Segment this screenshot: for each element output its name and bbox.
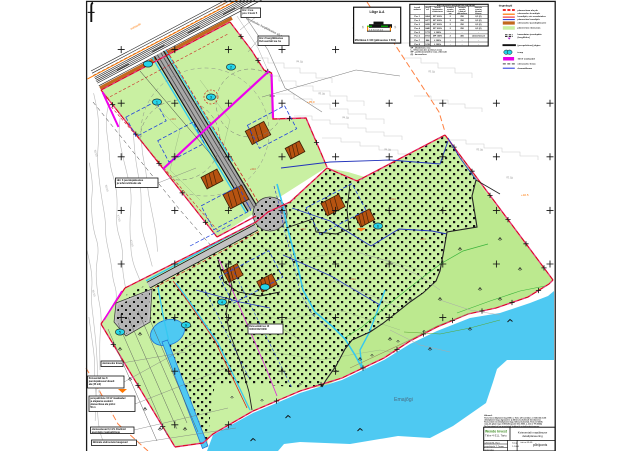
svg-text:tingmärgid: tingmärgid bbox=[499, 3, 513, 7]
svg-text:Pos 6: Pos 6 bbox=[414, 36, 420, 38]
svg-text:m2: m2 bbox=[426, 9, 429, 11]
svg-text:EP 100%: EP 100% bbox=[433, 20, 442, 22]
svg-text:Pos 8: Pos 8 bbox=[414, 44, 420, 46]
svg-text:Kvissentali tee 1a: Kvissentali tee 1a bbox=[259, 39, 281, 43]
svg-text:olemasolev kraav: olemasolev kraav bbox=[102, 362, 123, 365]
svg-text:EHITUSÕIGUS JA KRUNTIDE NÄITAJ: EHITUSÕIGUS JA KRUNTIDE NÄITAJAD bbox=[437, 4, 476, 7]
svg-text:(perspektiivne) jalgtee: (perspektiivne) jalgtee bbox=[518, 44, 542, 47]
svg-text:ja tehnovõrkude ala: ja tehnovõrkude ala bbox=[116, 181, 142, 185]
svg-text:sihtotstarve: sihtotstarve bbox=[432, 10, 443, 13]
svg-text:aadress: aadress bbox=[414, 9, 421, 11]
svg-text:+35.0: +35.0 bbox=[307, 100, 315, 104]
svg-text:1:1000: 1:1000 bbox=[512, 446, 519, 448]
svg-text:1: 1 bbox=[156, 100, 158, 104]
svg-text:Mõõtkava 1:100 (pikisuunas 1:5: Mõõtkava 1:100 (pikisuunas 1:500) bbox=[355, 39, 396, 42]
svg-text:+34.6: +34.6 bbox=[250, 169, 257, 171]
svg-text:kuup.: kuup. bbox=[512, 442, 518, 444]
svg-text:L 100%: L 100% bbox=[434, 44, 441, 46]
svg-text:6: 6 bbox=[377, 224, 379, 228]
svg-text:truup: truup bbox=[518, 51, 524, 54]
svg-text:Pos 5: Pos 5 bbox=[414, 32, 420, 34]
svg-text:+34.6: +34.6 bbox=[300, 229, 307, 231]
svg-text:asendada maakaablitega: asendada maakaablitega bbox=[92, 431, 121, 434]
svg-text:8,5 (2): 8,5 (2) bbox=[475, 16, 481, 18]
svg-text:töö nr 05-05: töö nr 05-05 bbox=[521, 441, 534, 444]
svg-text:Emajõgi: Emajõgi bbox=[394, 397, 413, 403]
svg-text:kõrgus: kõrgus bbox=[475, 12, 481, 15]
svg-text:27737: 27737 bbox=[425, 36, 432, 38]
svg-text:EP 100%: EP 100% bbox=[433, 16, 442, 18]
svg-text:krundipiir, mis muudetakse: krundipiir, mis muudetakse bbox=[518, 15, 547, 18]
svg-text:lähimate eluhoonete kaugused: lähimate eluhoonete kaugused bbox=[93, 441, 128, 444]
svg-text:Pos 7: Pos 7 bbox=[414, 40, 420, 42]
svg-text:10 kV maakaabel: 10 kV maakaabel bbox=[518, 58, 536, 60]
svg-text:+34.6: +34.6 bbox=[420, 239, 427, 241]
svg-text:olemasolev juurdepääsutee: olemasolev juurdepääsutee bbox=[518, 22, 547, 25]
svg-text:4: 4 bbox=[221, 300, 223, 304]
svg-text:väikeehitised: väikeehitised bbox=[472, 35, 486, 38]
svg-text:EP 100%: EP 100% bbox=[433, 28, 442, 30]
svg-text:olemasolev kraav: olemasolev kraav bbox=[518, 64, 537, 66]
svg-text:Lõige A-A: Lõige A-A bbox=[370, 10, 386, 14]
svg-text:10404:002:0030: 10404:002:0030 bbox=[249, 328, 267, 331]
svg-text:8,5 (2): 8,5 (2) bbox=[475, 20, 481, 22]
svg-text:olemasolev krundipiir: olemasolev krundipiir bbox=[518, 13, 541, 15]
svg-text:5: 5 bbox=[119, 330, 121, 334]
svg-text:+32.5: +32.5 bbox=[521, 193, 529, 197]
svg-text:8,5 (2): 8,5 (2) bbox=[475, 24, 481, 26]
svg-text:8,5 (2): 8,5 (2) bbox=[475, 28, 481, 30]
svg-text:+34.6: +34.6 bbox=[350, 279, 357, 281]
svg-text:ehitusalune: ehitusalune bbox=[457, 12, 468, 15]
svg-text:2: 2 bbox=[230, 65, 232, 69]
svg-text:L 100%: L 100% bbox=[434, 32, 441, 34]
svg-text:planeeritav elamumaa: planeeritav elamumaa bbox=[518, 26, 542, 29]
svg-text:3: 3 bbox=[210, 95, 212, 99]
svg-text:drenaažikraav: drenaažikraav bbox=[518, 67, 533, 70]
svg-text:pos 1 kuni 5: pos 1 kuni 5 bbox=[242, 11, 258, 15]
svg-text:(2) - korruselisus: (2) - korruselisus bbox=[411, 54, 428, 56]
svg-text:Pos 3: Pos 3 bbox=[414, 24, 420, 26]
svg-text:planeeritav krundipiir: planeeritav krundipiir bbox=[518, 18, 540, 21]
svg-text:detailplaneering: detailplaneering bbox=[522, 434, 543, 438]
svg-text:Tähe 4-311, Tartu: Tähe 4-311, Tartu bbox=[485, 434, 507, 438]
svg-text:+34.6: +34.6 bbox=[170, 119, 177, 121]
svg-text:(kergliiklus): (kergliiklus) bbox=[518, 37, 531, 39]
svg-text:9: 9 bbox=[185, 323, 187, 327]
svg-text:EP 100%: EP 100% bbox=[433, 24, 442, 26]
svg-text:MP 100%: MP 100% bbox=[433, 36, 442, 38]
svg-text:Pos 4: Pos 4 bbox=[414, 27, 420, 30]
svg-text:projektijuht T. Tamm: projektijuht T. Tamm bbox=[485, 445, 505, 448]
svg-text:planeeritava ala piir: planeeritava ala piir bbox=[518, 9, 539, 12]
svg-text:Pos 2: Pos 2 bbox=[414, 20, 420, 22]
svg-text:Pos 1: Pos 1 bbox=[414, 16, 420, 18]
svg-text:50 m: 50 m bbox=[90, 406, 95, 409]
svg-text:+34.6: +34.6 bbox=[390, 199, 397, 201]
svg-text:ala (45 m2): ala (45 m2) bbox=[89, 383, 102, 386]
svg-text:arhitekt M. Hurt: arhitekt M. Hurt bbox=[485, 441, 500, 444]
svg-text:kavandatav juurdepääs: kavandatav juurdepääs bbox=[518, 33, 543, 36]
svg-text:põhijoonis: põhijoonis bbox=[533, 443, 548, 447]
svg-text:L 100%: L 100% bbox=[434, 40, 441, 42]
svg-text:2,5 3,5 3,5 2,5: 2,5 3,5 3,5 2,5 bbox=[369, 30, 384, 32]
